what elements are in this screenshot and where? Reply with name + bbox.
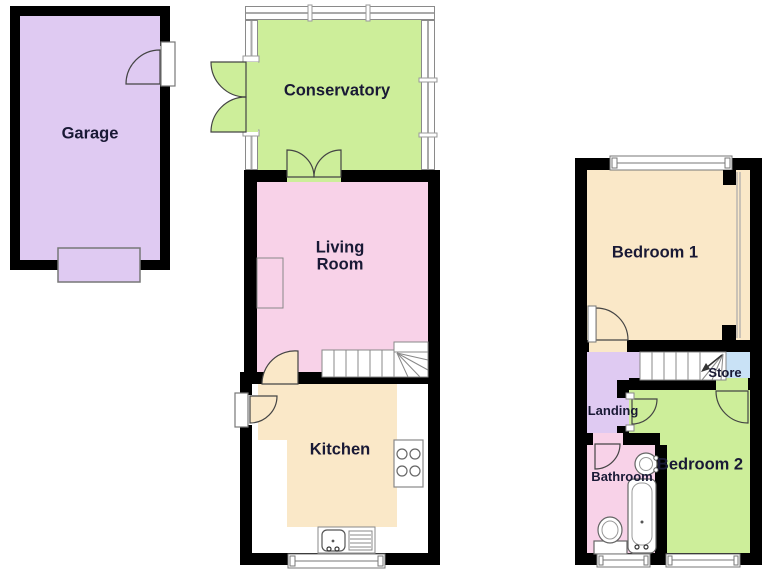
room-label-kitchen: Kitchen <box>310 441 371 458</box>
bathroom-window-icon <box>597 554 650 567</box>
ground-staircase <box>322 342 428 377</box>
living-kitchen-door-arc <box>262 351 298 384</box>
garage-door-arc <box>126 42 175 86</box>
bedroom1-window-icon <box>610 156 732 170</box>
garage-entry-door <box>58 248 140 282</box>
conservatory-inner-double-door-icon <box>287 150 341 177</box>
chimney-recess <box>257 258 283 308</box>
room-label-conservatory: Conservatory <box>284 82 390 99</box>
room-label-garage: Garage <box>62 125 119 142</box>
kitchen-side-door-arc <box>235 393 277 427</box>
room-label-living-room: Living Room <box>305 240 375 275</box>
conservatory-french-doors-icon <box>211 62 258 132</box>
bedroom1-door-arc <box>588 306 628 342</box>
kitchen-window-icon <box>288 554 385 568</box>
kitchen-sink-icon <box>318 527 375 553</box>
store-door-arc <box>716 391 748 423</box>
bath-icon <box>628 479 656 553</box>
toilet-icon <box>594 517 627 554</box>
conservatory-glazing-ticks <box>243 5 437 137</box>
floor-plan: Garage Conservatory Living Room Kitchen … <box>0 0 768 576</box>
room-label-bedroom2: Bedroom 2 <box>657 456 743 473</box>
bathroom-door-arc <box>595 444 620 469</box>
room-label-store: Store <box>708 366 741 380</box>
bedroom2-window-icon <box>666 554 740 567</box>
wardrobe-partition <box>722 170 740 340</box>
room-label-bathroom: Bathroom <box>591 470 652 484</box>
room-label-landing: Landing <box>588 404 639 418</box>
drainer-icon <box>349 531 372 550</box>
hob-icon <box>394 440 423 487</box>
room-label-bedroom1: Bedroom 1 <box>612 244 698 261</box>
